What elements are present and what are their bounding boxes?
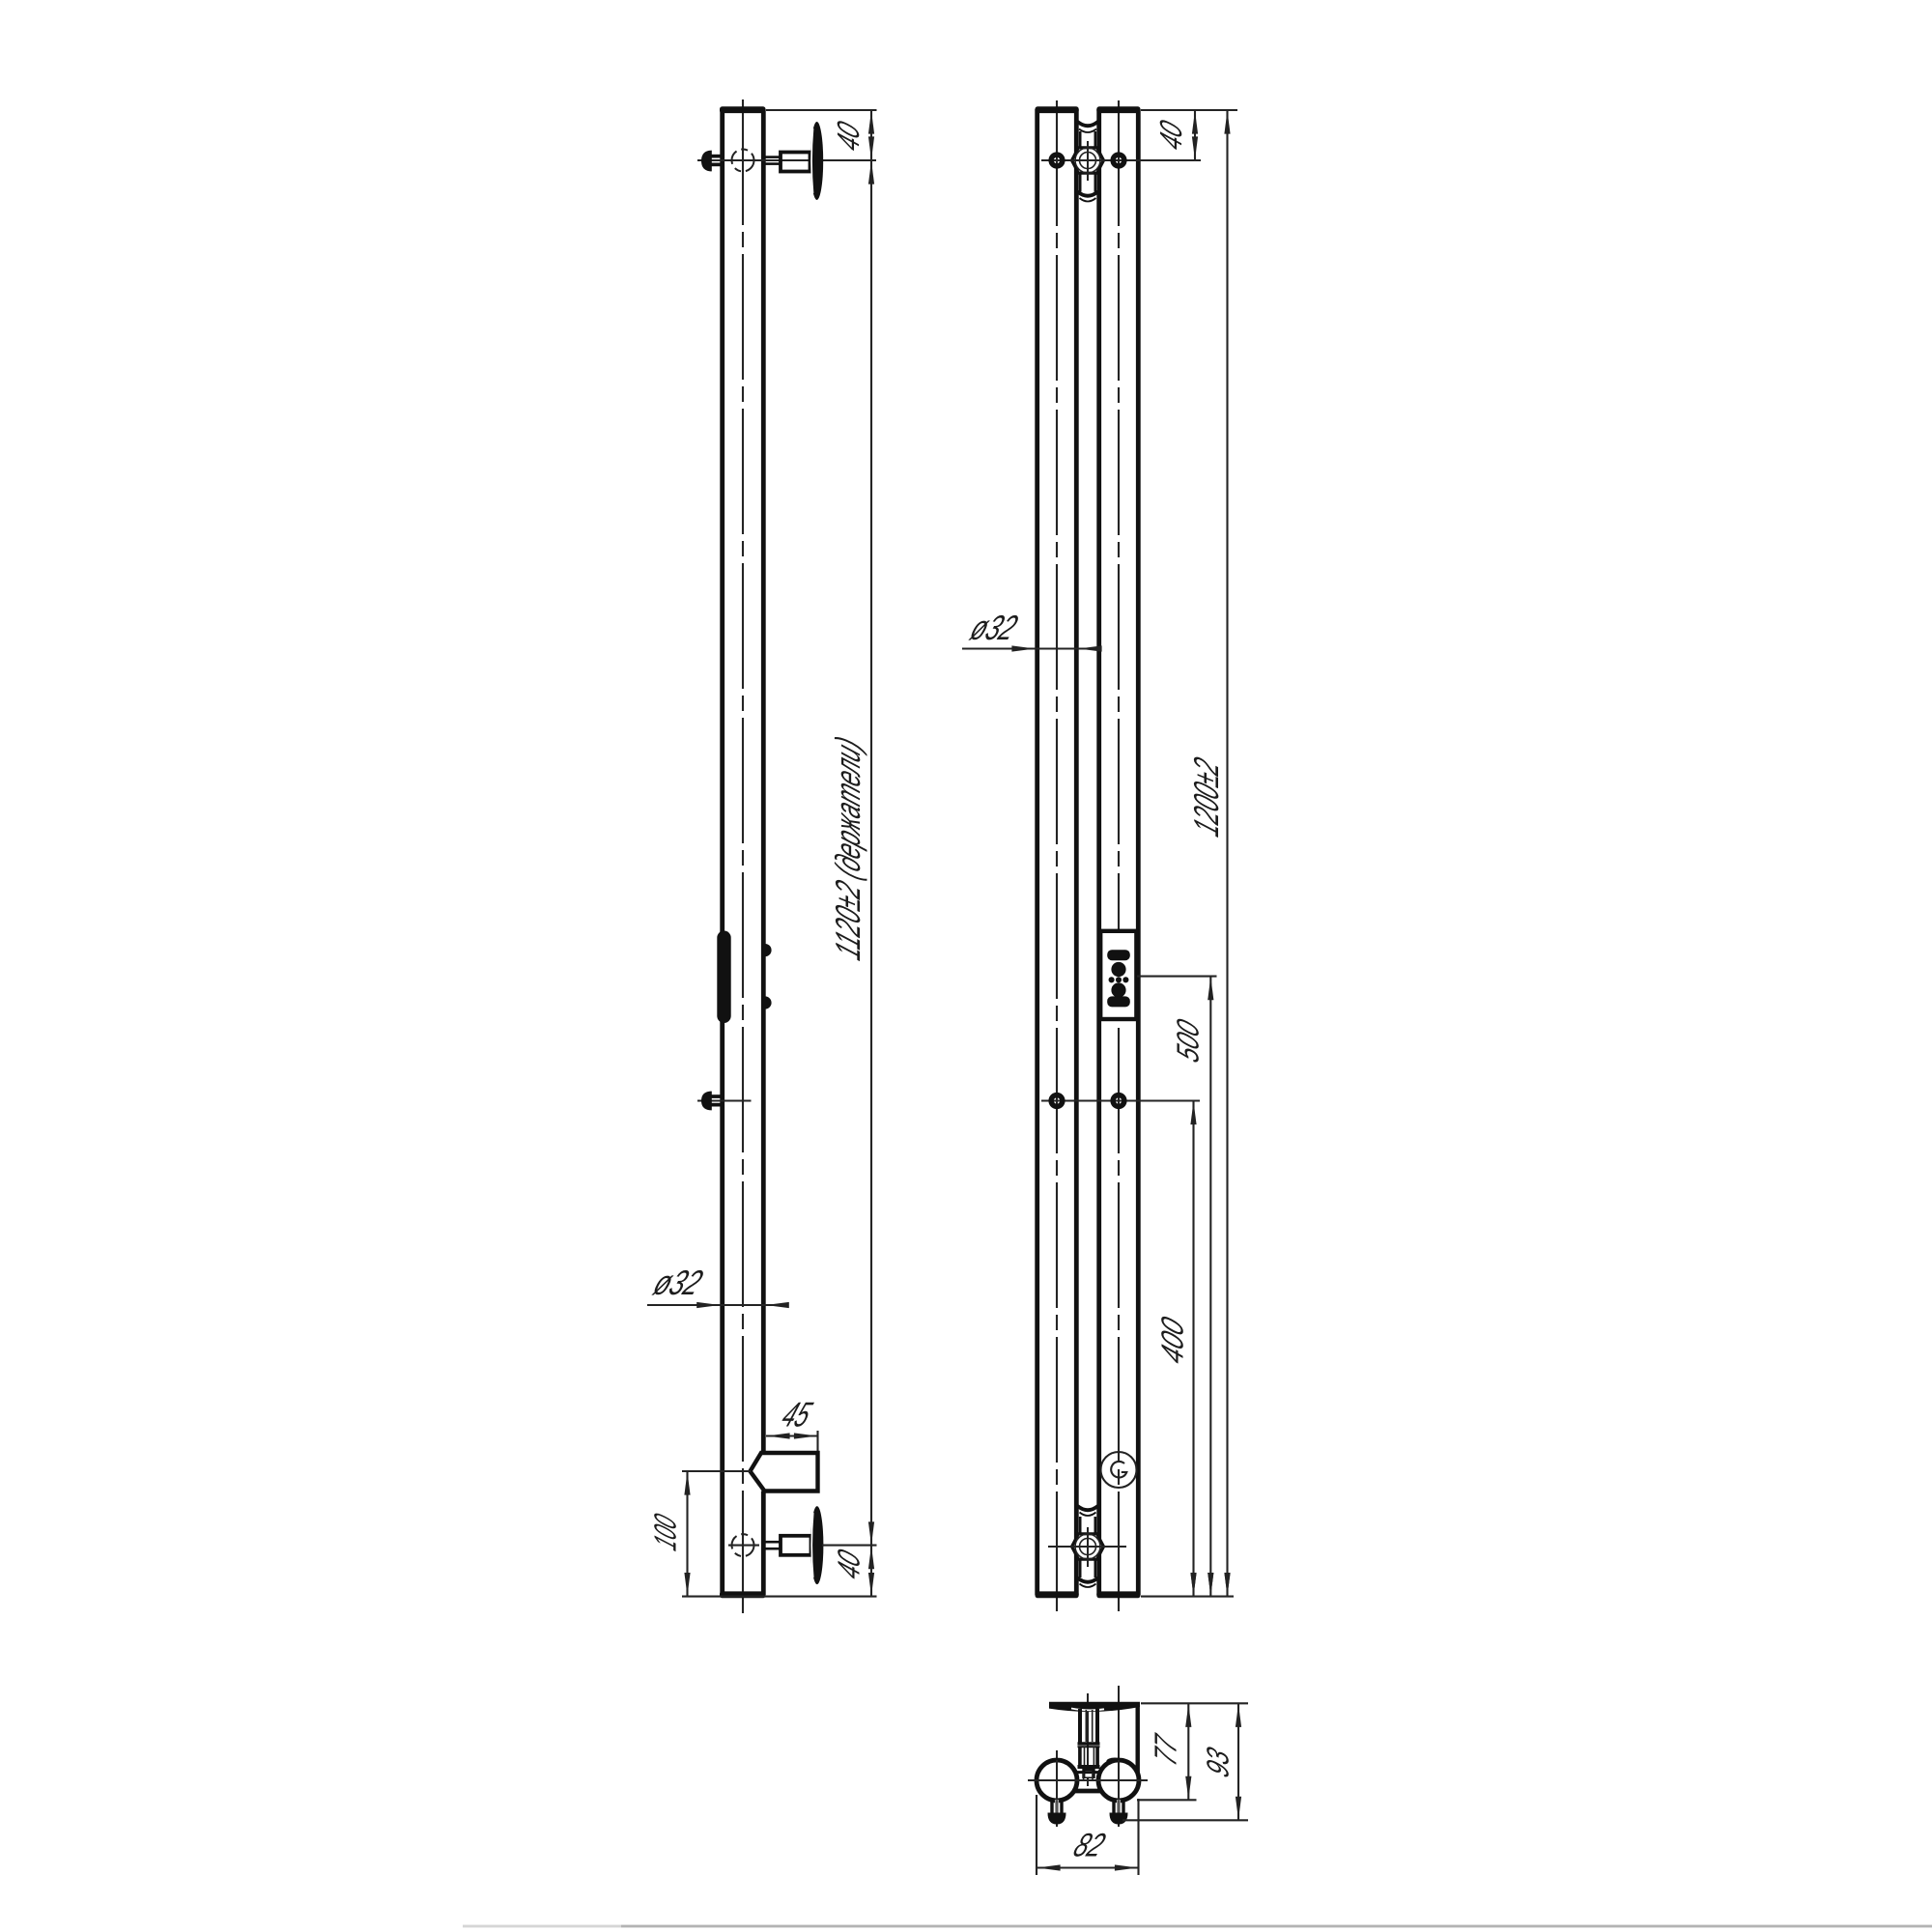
svg-text:1200±2: 1200±2 [1186, 752, 1225, 840]
svg-text:45: 45 [777, 1395, 817, 1434]
svg-text:400: 400 [1155, 1312, 1190, 1369]
svg-text:40: 40 [832, 1545, 867, 1584]
svg-text:77: 77 [1150, 1729, 1184, 1770]
svg-text:ø32: ø32 [648, 1263, 708, 1301]
svg-text:40: 40 [1154, 116, 1189, 156]
svg-text:100: 100 [648, 1509, 683, 1555]
svg-text:40: 40 [832, 117, 867, 156]
svg-text:1120±2 (держатели): 1120±2 (держатели) [828, 730, 867, 964]
svg-text:82: 82 [1068, 1828, 1110, 1863]
svg-text:ø32: ø32 [965, 608, 1023, 646]
svg-text:500: 500 [1171, 1014, 1206, 1067]
svg-text:93: 93 [1202, 1743, 1236, 1782]
